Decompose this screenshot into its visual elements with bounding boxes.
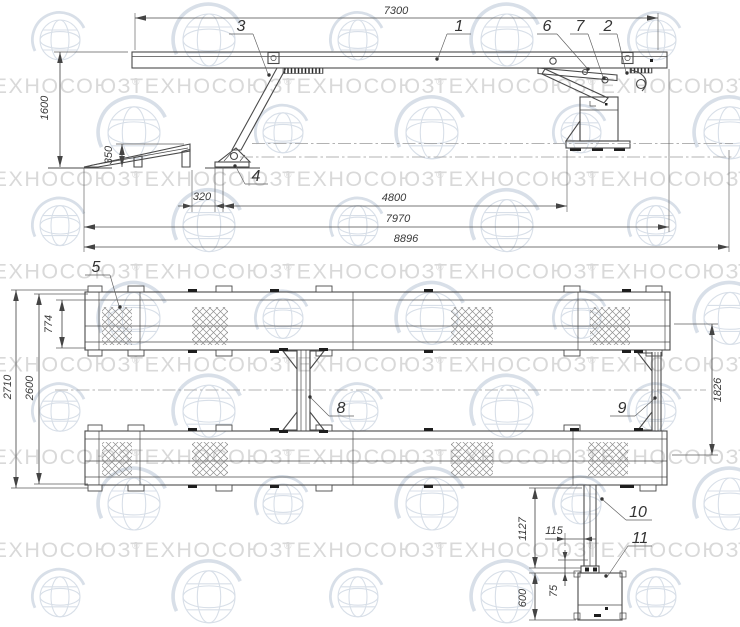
label-link-rear: 7 xyxy=(576,18,586,35)
cross-member-right xyxy=(634,350,661,431)
weld-tick xyxy=(188,350,197,353)
dim-post-offset: 115 xyxy=(545,525,563,537)
dim-inner-width: 2600 xyxy=(24,375,36,401)
tread-pad xyxy=(451,442,493,476)
plan-view-labels: 5 8 9 10 11 xyxy=(85,259,657,578)
weld-tick xyxy=(622,289,631,292)
weld-tick xyxy=(270,428,279,431)
tread-pad xyxy=(102,307,132,345)
dim-box-size: 600 xyxy=(517,588,529,607)
mount-clip xyxy=(316,485,332,491)
label-lock-bracket: 2 xyxy=(603,18,613,35)
bracket-left xyxy=(268,53,279,64)
dim-top-length: 7300 xyxy=(384,5,409,17)
mount-clip xyxy=(216,350,232,356)
dim-ramp-height: 350 xyxy=(103,145,115,164)
tread-pad xyxy=(192,307,228,345)
dim-box-offset: 75 xyxy=(548,584,560,597)
dim-runway-spacing: 1826 xyxy=(712,377,724,402)
control-box xyxy=(574,571,626,620)
dim-ramp-gap: 320 xyxy=(193,191,212,203)
mount-clip xyxy=(128,286,144,292)
weld-tick xyxy=(424,428,433,431)
entry-ramp xyxy=(84,144,190,167)
support-leg xyxy=(232,68,286,150)
mount-clip xyxy=(646,286,662,292)
weld-tick xyxy=(622,350,631,353)
side-view-dimensions: 7300 1600 350 320 4800 7970 xyxy=(39,5,729,252)
drawing-canvas: ТЕХНОСОЮЗ®ТЕХНОСОЮЗ®ТЕХНОСОЮЗ®ТЕХНОСОЮЗ®… xyxy=(0,0,740,627)
label-cross-member-left: 8 xyxy=(337,400,346,417)
tread-pad xyxy=(451,307,493,345)
support-foot xyxy=(215,148,250,167)
mount-clip xyxy=(128,425,144,431)
mount-clip xyxy=(564,350,580,356)
mount-clip xyxy=(640,485,656,491)
mount-clip xyxy=(216,286,232,292)
weld-tick xyxy=(270,485,279,488)
support-post xyxy=(566,97,630,151)
label-post-arm: 10 xyxy=(629,504,647,521)
dim-support-span: 4800 xyxy=(382,192,407,204)
weld-tick xyxy=(424,289,433,292)
mount-clip xyxy=(216,485,232,491)
dim-overall-length: 8896 xyxy=(394,233,419,245)
technical-drawing: 7300 1600 350 320 4800 7970 xyxy=(0,0,740,627)
tread-pad xyxy=(192,442,228,476)
label-tread-pad: 5 xyxy=(92,259,101,276)
mount-clip xyxy=(128,350,144,356)
weld-tick xyxy=(188,289,197,292)
runway-bottom xyxy=(85,425,667,491)
weld-tick xyxy=(270,350,279,353)
dim-overall-width: 2710 xyxy=(2,374,14,400)
tread-pad xyxy=(590,307,630,345)
label-link-front: 6 xyxy=(543,18,552,35)
tread-pad xyxy=(102,442,132,476)
weld-tick xyxy=(424,350,433,353)
cross-member-left xyxy=(279,348,328,433)
label-support-foot: 4 xyxy=(252,168,261,185)
rack-strip-left xyxy=(283,68,323,74)
side-view-labels: 1 3 6 7 2 4 xyxy=(229,18,629,185)
weld-tick xyxy=(188,428,197,431)
mount-clip xyxy=(216,425,232,431)
runway-top xyxy=(85,286,670,356)
beam-hole xyxy=(550,58,556,64)
label-cross-member-right: 9 xyxy=(618,400,627,417)
link-arm-lower xyxy=(542,69,608,103)
weld-tick xyxy=(188,485,197,488)
side-view xyxy=(48,52,733,168)
mount-clip xyxy=(128,485,144,491)
weld-tick xyxy=(424,485,433,488)
tread-pad xyxy=(588,442,628,476)
plan-view xyxy=(55,286,706,620)
dim-platform-length: 7970 xyxy=(386,213,411,225)
label-platform: 1 xyxy=(455,18,464,35)
dim-height: 1600 xyxy=(39,95,51,120)
weld-tick xyxy=(570,428,579,431)
dim-runway-width: 774 xyxy=(43,315,55,333)
weld-tick xyxy=(270,289,279,292)
mount-clip xyxy=(316,286,332,292)
mount-clip xyxy=(564,286,580,292)
label-control-box: 11 xyxy=(632,530,649,547)
dim-post-length: 1127 xyxy=(517,516,529,541)
post-arm xyxy=(581,485,629,573)
label-support-leg: 3 xyxy=(237,18,246,35)
